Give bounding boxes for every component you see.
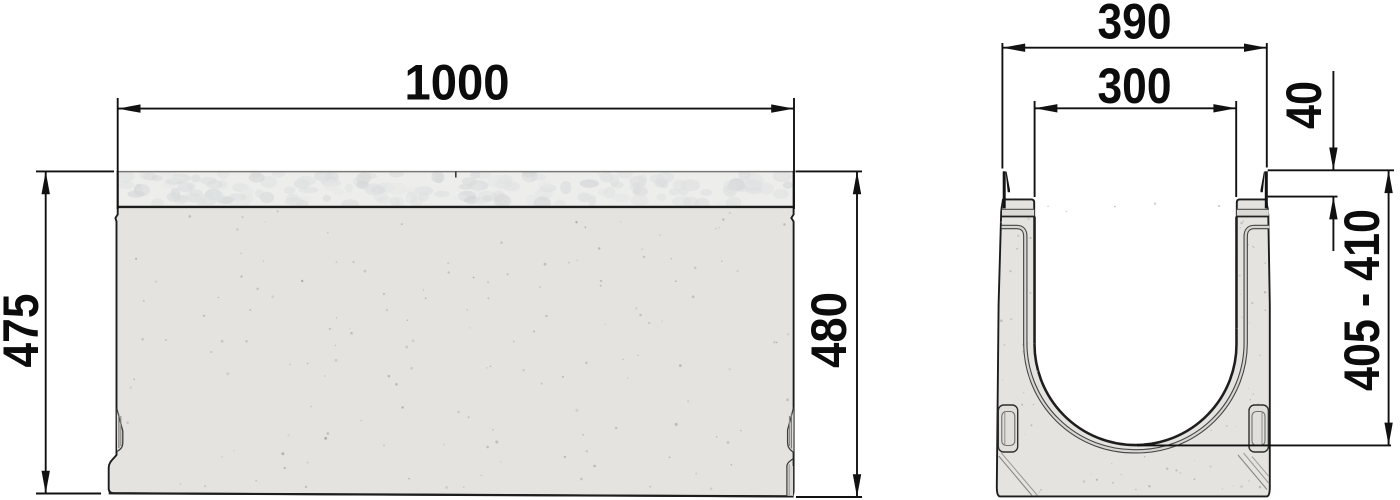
svg-text:405 - 410: 405 - 410: [1334, 209, 1390, 391]
svg-text:390: 390: [1098, 0, 1172, 50]
svg-text:40: 40: [1276, 81, 1332, 129]
svg-text:475: 475: [0, 294, 49, 368]
svg-text:480: 480: [801, 292, 857, 368]
svg-text:300: 300: [1098, 58, 1172, 114]
svg-text:1000: 1000: [405, 55, 510, 111]
